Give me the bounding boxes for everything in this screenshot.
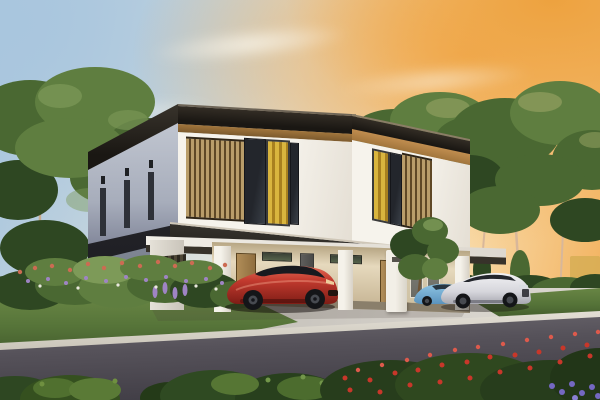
slit-window (100, 188, 106, 236)
wall-lamp (149, 160, 153, 168)
natural-image-canvas (0, 0, 600, 400)
white-sedan (437, 261, 533, 313)
foreground-bushes (0, 370, 345, 400)
slit-window (124, 180, 130, 228)
red-sports-sedan (222, 252, 340, 314)
slit-window (148, 172, 154, 220)
lavender-sprig (214, 320, 242, 333)
glass-door (244, 138, 266, 225)
wall-lamp (125, 168, 129, 176)
flowerbed-foliage (0, 255, 250, 310)
foreground-plants (0, 320, 600, 400)
wall-lamp (101, 176, 105, 184)
carport-pier (338, 250, 353, 310)
red-flower-bush (320, 330, 600, 400)
glass-panel (290, 142, 299, 225)
timber-louver-screen (186, 136, 244, 221)
flowerbed-left (0, 255, 250, 320)
gold-curtain-door (266, 139, 290, 226)
